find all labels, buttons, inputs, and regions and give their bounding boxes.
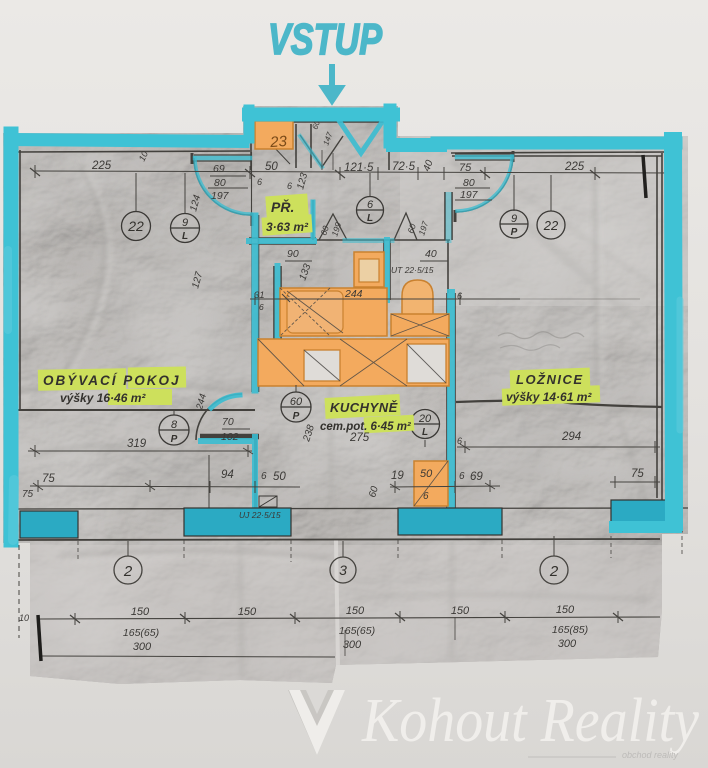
svg-text:75: 75 bbox=[22, 489, 34, 500]
svg-text:3·63 m²: 3·63 m² bbox=[266, 220, 309, 234]
svg-text:obchod reality: obchod reality bbox=[622, 750, 679, 760]
svg-text:9: 9 bbox=[511, 213, 517, 225]
svg-text:10: 10 bbox=[19, 613, 29, 623]
svg-text:300: 300 bbox=[558, 638, 577, 650]
svg-text:102: 102 bbox=[221, 431, 239, 443]
svg-text:výšky 14·61 m²: výšky 14·61 m² bbox=[506, 390, 592, 404]
svg-text:300: 300 bbox=[133, 641, 152, 653]
svg-text:300: 300 bbox=[343, 639, 362, 651]
svg-text:165(85): 165(85) bbox=[552, 624, 588, 636]
svg-text:L: L bbox=[422, 427, 428, 438]
svg-text:94: 94 bbox=[221, 469, 234, 481]
svg-text:P: P bbox=[293, 411, 300, 422]
svg-text:90: 90 bbox=[287, 248, 299, 260]
svg-text:69: 69 bbox=[213, 163, 225, 175]
svg-text:70: 70 bbox=[222, 416, 234, 428]
svg-text:UT 22·5/15: UT 22·5/15 bbox=[391, 265, 434, 275]
svg-text:72·5: 72·5 bbox=[392, 161, 416, 173]
svg-text:31: 31 bbox=[254, 290, 265, 301]
svg-text:22: 22 bbox=[127, 218, 144, 234]
svg-text:225: 225 bbox=[564, 161, 585, 173]
svg-text:UJ 22·5/15: UJ 22·5/15 bbox=[239, 510, 281, 520]
svg-text:150: 150 bbox=[131, 606, 150, 618]
svg-text:6: 6 bbox=[259, 302, 264, 312]
svg-text:150: 150 bbox=[346, 605, 365, 617]
svg-text:výšky 16·46 m²: výšky 16·46 m² bbox=[60, 391, 146, 405]
svg-text:150: 150 bbox=[556, 604, 575, 616]
svg-text:LOŽNICE: LOŽNICE bbox=[516, 372, 584, 387]
svg-text:6: 6 bbox=[261, 471, 267, 482]
svg-text:OBÝVACÍ POKOJ: OBÝVACÍ POKOJ bbox=[43, 373, 181, 388]
svg-text:23: 23 bbox=[269, 133, 288, 151]
svg-text:KUCHYNĚ: KUCHYNĚ bbox=[330, 400, 398, 415]
svg-text:50: 50 bbox=[420, 468, 433, 480]
svg-text:19: 19 bbox=[391, 470, 404, 482]
svg-text:225: 225 bbox=[91, 160, 112, 172]
svg-text:6: 6 bbox=[457, 291, 462, 301]
svg-text:75: 75 bbox=[42, 473, 55, 485]
svg-text:20: 20 bbox=[418, 413, 432, 425]
svg-text:6: 6 bbox=[287, 181, 292, 191]
svg-text:6: 6 bbox=[457, 436, 462, 446]
svg-text:40: 40 bbox=[425, 248, 437, 260]
svg-text:165(65): 165(65) bbox=[339, 625, 375, 637]
svg-text:9: 9 bbox=[182, 217, 188, 229]
svg-text:275: 275 bbox=[349, 432, 370, 444]
svg-text:165(65): 165(65) bbox=[123, 627, 159, 639]
svg-text:75: 75 bbox=[631, 468, 644, 480]
svg-text:3: 3 bbox=[339, 562, 347, 578]
svg-text:P: P bbox=[171, 434, 178, 445]
svg-text:VSTUP: VSTUP bbox=[268, 15, 383, 64]
svg-text:L: L bbox=[182, 231, 188, 242]
svg-text:22: 22 bbox=[543, 218, 559, 233]
svg-text:6: 6 bbox=[459, 471, 465, 482]
svg-text:L: L bbox=[367, 213, 373, 224]
svg-text:121·5: 121·5 bbox=[344, 162, 374, 174]
svg-text:PŘ.: PŘ. bbox=[271, 198, 294, 215]
svg-text:150: 150 bbox=[451, 605, 470, 617]
svg-text:197: 197 bbox=[460, 189, 479, 201]
svg-text:80: 80 bbox=[214, 177, 226, 189]
svg-text:8: 8 bbox=[171, 419, 178, 431]
svg-text:60: 60 bbox=[290, 396, 303, 408]
svg-text:6: 6 bbox=[257, 177, 262, 187]
svg-text:294: 294 bbox=[561, 431, 581, 443]
svg-text:197: 197 bbox=[211, 190, 230, 202]
svg-text:50: 50 bbox=[273, 471, 286, 483]
svg-text:69: 69 bbox=[470, 471, 483, 483]
svg-text:Kohout Reality: Kohout Reality bbox=[361, 687, 699, 755]
svg-text:50: 50 bbox=[265, 161, 278, 173]
svg-text:2: 2 bbox=[123, 563, 133, 580]
svg-text:6: 6 bbox=[367, 199, 374, 211]
svg-text:150: 150 bbox=[238, 606, 257, 618]
svg-text:2: 2 bbox=[549, 563, 559, 580]
svg-text:75: 75 bbox=[459, 162, 472, 174]
svg-text:6: 6 bbox=[423, 491, 429, 502]
svg-text:P: P bbox=[511, 227, 518, 238]
svg-text:244: 244 bbox=[344, 288, 363, 300]
svg-text:319: 319 bbox=[127, 438, 147, 450]
svg-text:80: 80 bbox=[463, 177, 475, 189]
